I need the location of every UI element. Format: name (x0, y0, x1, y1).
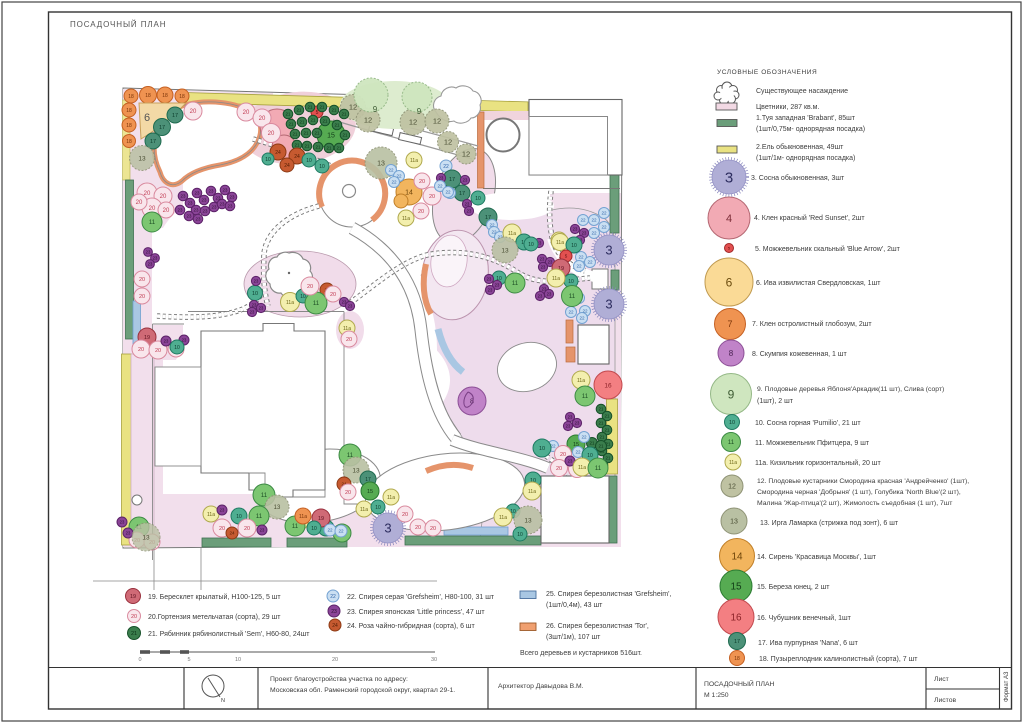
svg-text:11: 11 (595, 466, 602, 472)
svg-text:10: 10 (300, 294, 306, 300)
svg-text:13: 13 (142, 534, 150, 541)
svg-text:Московская обл. Раменский горо: Московская обл. Раменский городской окру… (270, 686, 455, 694)
svg-text:17: 17 (449, 177, 455, 183)
svg-text:10: 10 (236, 514, 242, 520)
svg-text:23: 23 (230, 195, 235, 200)
svg-text:14: 14 (405, 190, 413, 197)
svg-text:23: 23 (187, 214, 192, 219)
svg-text:22: 22 (601, 225, 607, 230)
svg-text:23: 23 (568, 415, 573, 420)
svg-text:23: 23 (148, 262, 153, 267)
svg-text:23: 23 (153, 256, 158, 261)
svg-text:Формат А3: Формат А3 (1004, 671, 1010, 702)
svg-text:0: 0 (138, 657, 141, 663)
svg-text:23: 23 (487, 277, 492, 282)
svg-text:15: 15 (367, 489, 373, 495)
svg-text:9. Плодовые деревья Яблоня'Ар: 9. Плодовые деревья Яблоня'Аркадик(11 шт… (757, 385, 944, 393)
svg-text:11: 11 (512, 281, 519, 287)
svg-text:20: 20 (243, 110, 250, 116)
svg-text:Архитектор Давыдова В.М.: Архитектор Давыдова В.М. (498, 683, 584, 690)
svg-text:23: 23 (573, 227, 578, 232)
svg-text:23: 23 (188, 201, 193, 206)
svg-text:1.Туя западная 'Brabant', 85шт: 1.Туя западная 'Brabant', 85шт (756, 115, 856, 122)
svg-text:20: 20 (160, 194, 167, 200)
svg-text:21: 21 (308, 105, 313, 110)
svg-text:23: 23 (582, 231, 587, 236)
svg-text:20: 20 (345, 490, 351, 496)
svg-text:10: 10 (539, 446, 545, 452)
svg-text:11: 11 (256, 514, 263, 520)
svg-text:11а: 11а (578, 465, 586, 471)
svg-text:5. Можжевельник скальный 'Blue: 5. Можжевельник скальный 'Blue Arrow', 2… (755, 245, 901, 253)
svg-text:18: 18 (734, 656, 740, 662)
svg-text:12: 12 (462, 150, 470, 159)
svg-text:12: 12 (444, 138, 452, 147)
svg-text:(3шт/1м), 107 шт: (3шт/1м), 107 шт (546, 634, 601, 641)
svg-text:22. Спирея серая 'Grefsheim',: 22. Спирея серая 'Grefsheim', H80-100, 3… (347, 594, 495, 601)
svg-text:22: 22 (591, 231, 597, 236)
svg-text:23: 23 (194, 208, 199, 213)
svg-text:24. Роза чайно-гибридная (сорт: 24. Роза чайно-гибридная (сорта), 6 шт (347, 622, 476, 630)
svg-text:20: 20 (138, 347, 144, 353)
svg-text:11а: 11а (577, 378, 585, 384)
svg-text:ПОСАДОЧНЫЙ ПЛАН: ПОСАДОЧНЫЙ ПЛАН (70, 20, 166, 29)
svg-text:21: 21 (337, 146, 342, 151)
svg-text:11а: 11а (402, 216, 410, 222)
svg-text:20: 20 (429, 194, 435, 200)
svg-text:19: 19 (144, 335, 150, 341)
svg-text:20.Гортензия метельчатая (сорт: 20.Гортензия метельчатая (сорта), 29 шт (148, 614, 281, 621)
svg-text:23: 23 (195, 191, 200, 196)
svg-text:20: 20 (139, 294, 145, 300)
svg-text:21: 21 (297, 108, 302, 113)
svg-text:4: 4 (726, 213, 732, 225)
svg-text:22: 22 (437, 184, 443, 189)
svg-text:12: 12 (728, 484, 736, 491)
svg-text:5: 5 (187, 657, 190, 663)
svg-text:23. Спирея японская 'Little pr: 23. Спирея японская 'Little princess', 4… (347, 609, 485, 616)
svg-text:Проект благоустройства участка: Проект благоустройства участка по адресу… (270, 675, 408, 683)
svg-text:8. Скумпия кожевенная, 1 шт: 8. Скумпия кожевенная, 1 шт (752, 351, 847, 358)
svg-text:(1шт/0,75м- однорядная посадка: (1шт/0,75м- однорядная посадка) (756, 126, 865, 133)
svg-text:20: 20 (556, 466, 562, 472)
svg-text:УСЛОВНЫЕ ОБОЗНАЧЕНИЯ: УСЛОВНЫЕ ОБОЗНАЧЕНИЯ (717, 69, 817, 76)
svg-text:13: 13 (501, 247, 509, 254)
svg-text:(1шт), 2 шт: (1шт), 2 шт (757, 398, 794, 405)
svg-text:20: 20 (332, 657, 338, 663)
svg-text:16. Чубушник венечный, 1шт: 16. Чубушник венечный, 1шт (757, 614, 852, 622)
svg-text:21: 21 (311, 118, 316, 123)
svg-text:30: 30 (431, 657, 437, 663)
svg-text:23: 23 (348, 304, 353, 309)
svg-text:21: 21 (599, 444, 604, 449)
svg-text:23: 23 (439, 176, 444, 181)
svg-text:7: 7 (727, 319, 732, 329)
svg-text:18: 18 (126, 123, 132, 129)
svg-text:10: 10 (319, 164, 325, 170)
svg-text:21: 21 (342, 112, 347, 117)
svg-text:21: 21 (599, 421, 604, 426)
svg-text:20: 20 (268, 131, 275, 137)
svg-text:14: 14 (731, 552, 743, 563)
svg-text:13: 13 (377, 161, 385, 168)
svg-text:22: 22 (591, 218, 597, 223)
svg-text:10: 10 (235, 657, 241, 663)
svg-text:18. Пузыреплодник калинолистны: 18. Пузыреплодник калинолистный (сорта),… (759, 655, 918, 663)
svg-text:10: 10 (587, 453, 593, 459)
svg-text:20: 20 (155, 348, 161, 354)
svg-text:12: 12 (433, 117, 441, 126)
svg-text:23: 23 (463, 178, 468, 183)
svg-text:(1шт/1м- однорядная посадка): (1шт/1м- однорядная посадка) (756, 155, 855, 162)
svg-text:23: 23 (182, 338, 187, 343)
svg-text:23: 23 (203, 209, 208, 214)
svg-text:11а: 11а (410, 158, 418, 164)
svg-text:20: 20 (149, 206, 156, 212)
svg-text:10. Сосна горная 'Pumilio', 21: 10. Сосна горная 'Pumilio', 21 шт (755, 420, 861, 427)
svg-text:17. Ива пурпурная 'Nana', 6 шт: 17. Ива пурпурная 'Nana', 6 шт (758, 640, 859, 647)
svg-text:24: 24 (284, 163, 290, 169)
svg-text:15. Береза юнец, 2 шт: 15. Береза юнец, 2 шт (757, 584, 830, 591)
svg-text:22: 22 (338, 529, 344, 534)
svg-text:11: 11 (292, 524, 299, 530)
svg-text:20: 20 (346, 337, 352, 343)
svg-text:15: 15 (730, 582, 742, 593)
svg-text:22: 22 (388, 168, 394, 173)
svg-text:10: 10 (265, 157, 271, 163)
svg-text:21: 21 (327, 146, 332, 151)
svg-text:23: 23 (178, 208, 183, 213)
svg-text:12: 12 (364, 116, 372, 125)
svg-text:10: 10 (174, 345, 180, 351)
svg-text:21: 21 (600, 435, 605, 440)
svg-text:22: 22 (601, 211, 607, 216)
svg-text:23: 23 (220, 508, 225, 513)
svg-text:23: 23 (250, 310, 255, 315)
svg-text:Существующее насаждение: Существующее насаждение (756, 88, 848, 95)
svg-text:20: 20 (136, 200, 143, 206)
svg-text:10: 10 (571, 243, 577, 249)
svg-text:11а: 11а (508, 231, 516, 237)
svg-text:23: 23 (566, 424, 571, 429)
svg-text:22: 22 (568, 310, 574, 315)
svg-text:22: 22 (576, 264, 582, 269)
svg-text:13: 13 (274, 505, 281, 511)
svg-text:20: 20 (402, 512, 408, 518)
svg-text:21: 21 (305, 144, 310, 149)
svg-text:10: 10 (252, 291, 258, 297)
svg-text:23: 23 (164, 339, 169, 344)
svg-text:24: 24 (332, 623, 338, 629)
svg-text:21: 21 (605, 428, 610, 433)
svg-text:10: 10 (729, 420, 735, 426)
svg-text:20: 20 (259, 116, 266, 122)
svg-text:19. Бересклет крылатый, H100-1: 19. Бересклет крылатый, H100-125, 5 шт (148, 593, 281, 601)
svg-text:13: 13 (524, 517, 532, 524)
svg-text:11а: 11а (286, 300, 294, 306)
svg-text:23: 23 (220, 202, 225, 207)
svg-text:N: N (221, 698, 225, 704)
svg-text:3: 3 (605, 297, 612, 312)
svg-text:3: 3 (605, 243, 612, 258)
svg-text:23: 23 (568, 459, 573, 464)
svg-text:Лист: Лист (934, 676, 949, 683)
svg-text:19: 19 (130, 594, 136, 600)
svg-text:23: 23 (212, 205, 217, 210)
svg-text:20: 20 (190, 109, 197, 115)
svg-text:11а. Кизильник горизонтальный,: 11а. Кизильник горизонтальный, 20 шт (755, 459, 881, 467)
svg-text:11а: 11а (556, 240, 564, 246)
svg-text:8: 8 (729, 349, 734, 358)
svg-text:20: 20 (307, 284, 313, 290)
svg-text:11. Можжевельник Пфитцера, 9 ш: 11. Можжевельник Пфитцера, 9 шт (755, 440, 870, 447)
svg-text:(1шт/0,4м), 43 шт: (1шт/0,4м), 43 шт (546, 602, 603, 609)
svg-text:13: 13 (730, 519, 738, 526)
svg-text:20: 20 (131, 614, 137, 620)
svg-text:19: 19 (318, 516, 324, 522)
svg-text:11: 11 (149, 220, 156, 226)
svg-text:23: 23 (331, 609, 337, 615)
svg-text:11: 11 (728, 440, 735, 446)
svg-text:20: 20 (415, 525, 421, 531)
svg-text:21: 21 (295, 143, 300, 148)
svg-text:10: 10 (528, 242, 534, 248)
svg-text:Листов: Листов (934, 697, 956, 704)
svg-text:21: 21 (286, 112, 291, 117)
svg-text:23: 23 (260, 528, 265, 533)
svg-text:21: 21 (316, 145, 321, 150)
svg-text:20: 20 (330, 292, 336, 298)
svg-text:10: 10 (517, 532, 523, 538)
svg-text:17: 17 (172, 113, 178, 119)
svg-text:21: 21 (304, 131, 309, 136)
svg-text:23: 23 (196, 217, 201, 222)
svg-text:2.Ель обыкновенная, 49шт: 2.Ель обыкновенная, 49шт (756, 143, 844, 151)
svg-text:6. Ива извилистая Свердловская: 6. Ива извилистая Свердловская, 1шт (756, 280, 881, 287)
svg-text:20: 20 (219, 526, 225, 532)
svg-text:ПОСАДОЧНЫЙ ПЛАН: ПОСАДОЧНЫЙ ПЛАН (704, 679, 775, 688)
svg-text:4. Клен красный 'Red Sunset',: 4. Клен красный 'Red Sunset', 2шт (754, 214, 865, 222)
svg-text:21: 21 (323, 119, 328, 124)
svg-text:18: 18 (126, 108, 132, 114)
svg-text:22: 22 (580, 218, 586, 223)
svg-text:22: 22 (579, 316, 585, 321)
svg-text:22: 22 (330, 594, 336, 600)
svg-text:20: 20 (419, 179, 425, 185)
svg-text:21: 21 (590, 441, 595, 446)
svg-text:13: 13 (138, 155, 146, 162)
svg-text:21: 21 (335, 123, 340, 128)
svg-text:23: 23 (146, 250, 151, 255)
svg-text:11а: 11а (499, 515, 507, 521)
svg-text:22: 22 (581, 435, 587, 440)
svg-text:18: 18 (145, 93, 151, 99)
svg-text:21: 21 (343, 133, 348, 138)
svg-text:13. Ирга Ламарка (стрижка под: 13. Ирга Ламарка (стрижка под зонт), 6 ш… (760, 520, 899, 527)
svg-text:22: 22 (327, 528, 333, 533)
svg-text:20: 20 (418, 209, 424, 215)
svg-text:3. Сосна обыкновенная, 3шт: 3. Сосна обыкновенная, 3шт (751, 174, 845, 182)
svg-text:18: 18 (179, 94, 185, 100)
svg-text:12: 12 (349, 103, 357, 112)
svg-text:9: 9 (417, 107, 422, 116)
svg-text:11а: 11а (207, 512, 215, 518)
svg-text:23: 23 (259, 306, 264, 311)
svg-text:13: 13 (352, 467, 360, 474)
svg-text:17: 17 (150, 139, 156, 145)
svg-text:17: 17 (734, 639, 740, 645)
svg-text:22: 22 (587, 260, 593, 265)
svg-text:21: 21 (131, 631, 137, 637)
svg-text:23: 23 (202, 198, 207, 203)
svg-text:10: 10 (475, 196, 481, 202)
svg-text:20: 20 (244, 526, 250, 532)
svg-text:25. Спирея березолистная 'Gref: 25. Спирея березолистная 'Grefsheim', (546, 590, 671, 598)
svg-text:5: 5 (565, 254, 568, 259)
svg-text:21: 21 (606, 456, 611, 461)
svg-text:24: 24 (275, 150, 281, 156)
svg-text:23: 23 (575, 421, 580, 426)
svg-text:12: 12 (409, 118, 417, 127)
svg-text:11а: 11а (360, 507, 368, 513)
svg-text:Смородина черная 'Добрыня' (1: Смородина черная 'Добрыня' (1 шт), Голуб… (757, 488, 961, 496)
svg-text:24: 24 (229, 531, 235, 536)
svg-text:23: 23 (488, 288, 493, 293)
svg-text:22: 22 (443, 164, 449, 170)
svg-text:23: 23 (465, 202, 470, 207)
svg-text:6: 6 (144, 112, 150, 124)
svg-text:21: 21 (599, 407, 604, 412)
svg-text:10: 10 (568, 279, 574, 285)
svg-text:23: 23 (120, 520, 125, 525)
svg-text:9: 9 (728, 387, 735, 401)
svg-text:22: 22 (445, 190, 451, 195)
svg-text:23: 23 (541, 265, 546, 270)
svg-text:15: 15 (327, 133, 335, 140)
svg-text:22: 22 (575, 450, 581, 455)
svg-text:23: 23 (540, 257, 545, 262)
svg-text:5: 5 (316, 110, 319, 116)
svg-text:20: 20 (139, 277, 145, 283)
svg-text:18: 18 (126, 139, 132, 145)
svg-text:18: 18 (162, 93, 168, 99)
svg-text:9: 9 (373, 105, 378, 114)
svg-text:11а: 11а (299, 514, 307, 520)
svg-text:16: 16 (730, 613, 742, 624)
svg-text:7. Клен остролистный глобозум,: 7. Клен остролистный глобозум, 2шт (752, 320, 872, 328)
svg-text:23: 23 (547, 292, 552, 297)
svg-text:11а: 11а (729, 460, 737, 466)
svg-text:3: 3 (725, 169, 733, 186)
svg-text:10: 10 (375, 505, 381, 511)
svg-text:Цветники, 287 кв.м.: Цветники, 287 кв.м. (756, 104, 819, 111)
svg-text:11: 11 (261, 493, 268, 499)
svg-text:20: 20 (163, 208, 170, 214)
svg-text:23: 23 (209, 189, 214, 194)
svg-text:23: 23 (181, 194, 186, 199)
svg-text:23: 23 (228, 204, 233, 209)
svg-text:23: 23 (126, 531, 131, 536)
svg-text:М 1:250: М 1:250 (704, 692, 729, 699)
svg-text:23: 23 (467, 209, 472, 214)
svg-text:18: 18 (128, 94, 134, 100)
svg-text:11а: 11а (552, 276, 560, 282)
svg-text:21: 21 (293, 132, 298, 137)
svg-text:23: 23 (538, 294, 543, 299)
svg-text:17: 17 (159, 125, 165, 131)
svg-text:23: 23 (223, 188, 228, 193)
svg-text:12. Плодовые кустарники Смород: 12. Плодовые кустарники Смородина красна… (757, 477, 969, 485)
svg-text:21: 21 (300, 120, 305, 125)
svg-text:21: 21 (289, 122, 294, 127)
svg-text:Малина 'Жар-птица'(2 шт), Жимо: Малина 'Жар-птица'(2 шт), Жимолость съед… (757, 499, 952, 507)
svg-text:24: 24 (294, 154, 300, 160)
svg-text:22: 22 (578, 255, 584, 260)
svg-text:21: 21 (332, 108, 337, 113)
svg-text:10: 10 (311, 526, 317, 532)
svg-text:23: 23 (495, 283, 500, 288)
svg-text:Всего деревьев и кустарников: Всего деревьев и кустарников 516шт. (520, 650, 642, 657)
svg-text:23: 23 (548, 260, 553, 265)
svg-text:21: 21 (605, 414, 610, 419)
svg-text:3: 3 (384, 521, 391, 536)
svg-text:10: 10 (306, 158, 312, 164)
svg-text:21: 21 (315, 131, 320, 136)
svg-text:21. Рябинник рябинолистный 'Se: 21. Рябинник рябинолистный 'Sem', H60-80… (148, 630, 310, 638)
svg-text:11: 11 (582, 394, 589, 400)
svg-text:21: 21 (320, 105, 325, 110)
svg-text:26. Спирея березолистная 'Tor': 26. Спирея березолистная 'Tor', (546, 622, 649, 630)
svg-text:17: 17 (459, 191, 465, 197)
svg-text:11: 11 (313, 301, 320, 307)
svg-text:11: 11 (569, 294, 576, 300)
svg-text:16: 16 (604, 382, 612, 389)
svg-text:6: 6 (726, 275, 733, 289)
svg-text:20: 20 (560, 452, 566, 458)
svg-text:22: 22 (391, 180, 397, 185)
svg-text:14. Сирень 'Красавица Москвы',: 14. Сирень 'Красавица Москвы', 1шт (757, 554, 877, 561)
svg-text:23: 23 (254, 279, 259, 284)
svg-text:11а: 11а (387, 495, 395, 501)
svg-text:11а: 11а (528, 489, 536, 495)
svg-text:20: 20 (430, 526, 436, 532)
